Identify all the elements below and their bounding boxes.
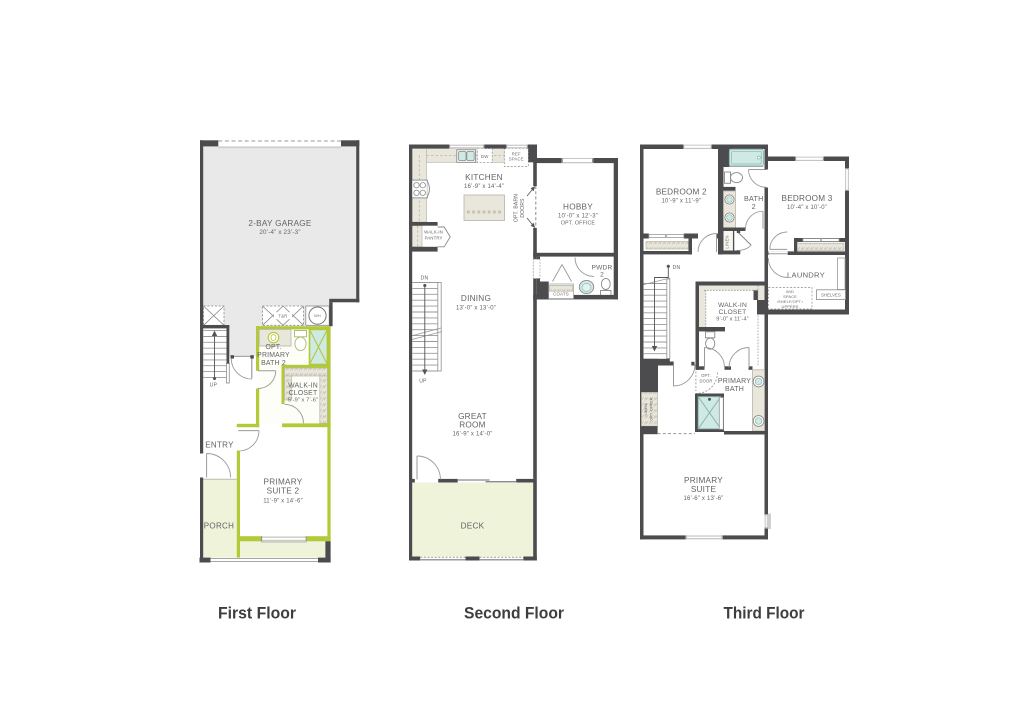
svg-text:PRIMARY: PRIMARY bbox=[264, 478, 303, 487]
svg-text:HOBBY: HOBBY bbox=[563, 203, 593, 212]
svg-text:COATS: COATS bbox=[553, 292, 569, 297]
svg-text:SPACE: SPACE bbox=[509, 157, 524, 162]
svg-text:DOORS: DOORS bbox=[520, 198, 526, 218]
svg-text:WALK-IN: WALK-IN bbox=[288, 383, 318, 390]
svg-text:2: 2 bbox=[752, 202, 756, 211]
svg-text:OPT.: OPT. bbox=[265, 344, 281, 351]
svg-text:9’-0” x 11’-4”: 9’-0” x 11’-4” bbox=[716, 317, 748, 323]
svg-text:UP: UP bbox=[419, 379, 427, 385]
svg-text:WH: WH bbox=[314, 314, 321, 318]
svg-text:20’-4” x 23’-3”: 20’-4” x 23’-3” bbox=[259, 229, 300, 236]
svg-text:WALK-IN: WALK-IN bbox=[424, 230, 443, 235]
svg-text:PANTRY: PANTRY bbox=[425, 236, 443, 241]
svg-text:OPT. BARN: OPT. BARN bbox=[514, 194, 520, 222]
svg-text:DN: DN bbox=[673, 265, 681, 271]
svg-text:DECK: DECK bbox=[461, 522, 485, 531]
svg-text:13’-0” x 13’-0”: 13’-0” x 13’-0” bbox=[456, 306, 496, 312]
svg-text:16’-9” x 14’-0”: 16’-9” x 14’-0” bbox=[452, 432, 492, 438]
svg-text:2-BAY GARAGE: 2-BAY GARAGE bbox=[248, 219, 312, 228]
svg-text:BEDROOM 2: BEDROOM 2 bbox=[656, 188, 707, 197]
svg-text:5’-9” x 7’-6”: 5’-9” x 7’-6” bbox=[288, 398, 318, 404]
svg-text:PORCH: PORCH bbox=[204, 522, 234, 531]
svg-text:UPPERS: UPPERS bbox=[781, 304, 798, 309]
svg-text:First Floor: First Floor bbox=[218, 604, 296, 623]
svg-text:11’-9” x 14’-6”: 11’-9” x 14’-6” bbox=[263, 499, 303, 505]
svg-text:DN: DN bbox=[421, 276, 429, 282]
svg-text:DINING: DINING bbox=[461, 294, 491, 303]
svg-text:10’-0” x 12’-3”: 10’-0” x 12’-3” bbox=[558, 214, 598, 220]
svg-text:LAUNDRY: LAUNDRY bbox=[787, 271, 825, 280]
svg-text:KITCHEN: KITCHEN bbox=[465, 173, 503, 182]
svg-text:16’-6” x 13’-6”: 16’-6” x 13’-6” bbox=[683, 496, 723, 502]
svg-text:10’-9” x 11’-9”: 10’-9” x 11’-9” bbox=[662, 199, 702, 205]
svg-text:PRIMARY: PRIMARY bbox=[257, 352, 290, 359]
svg-text:PRIMARY: PRIMARY bbox=[718, 378, 751, 385]
svg-text:SUITE 2: SUITE 2 bbox=[267, 487, 300, 496]
svg-text:BEDROOM 3: BEDROOM 3 bbox=[782, 194, 833, 203]
svg-text:Third Floor: Third Floor bbox=[724, 604, 805, 623]
svg-text:CLOSET: CLOSET bbox=[289, 390, 318, 397]
svg-text:2: 2 bbox=[600, 272, 604, 279]
svg-text:DW: DW bbox=[481, 154, 489, 159]
svg-text:DOOR: DOOR bbox=[700, 378, 713, 383]
svg-text:UP: UP bbox=[210, 383, 218, 389]
svg-text:Second Floor: Second Floor bbox=[464, 604, 564, 623]
svg-text:CLOSET: CLOSET bbox=[719, 309, 747, 316]
svg-text:16’-9” x 14’-4”: 16’-9” x 14’-4” bbox=[464, 184, 504, 190]
svg-text:SHELVES: SHELVES bbox=[821, 292, 841, 297]
svg-text:BATH 2: BATH 2 bbox=[261, 360, 286, 367]
svg-text:SUITE: SUITE bbox=[691, 485, 717, 494]
svg-text:ENTRY: ENTRY bbox=[205, 441, 234, 450]
svg-text:LINEN: LINEN bbox=[725, 235, 730, 248]
svg-text:PRIMARY: PRIMARY bbox=[684, 476, 723, 485]
svg-text:BATH: BATH bbox=[725, 386, 744, 393]
svg-text:10’-4” x 10’-0”: 10’-4” x 10’-0” bbox=[787, 205, 827, 211]
svg-text:ROOM: ROOM bbox=[459, 421, 485, 430]
svg-text:OPT. UPPER: OPT. UPPER bbox=[650, 397, 654, 421]
svg-text:T&R: T&R bbox=[279, 314, 288, 319]
svg-text:PWDR: PWDR bbox=[592, 265, 613, 272]
svg-text:LINEN/: LINEN/ bbox=[644, 402, 648, 416]
svg-text:OPT. OFFICE: OPT. OFFICE bbox=[561, 221, 596, 227]
svg-text:OPT.: OPT. bbox=[701, 373, 711, 378]
